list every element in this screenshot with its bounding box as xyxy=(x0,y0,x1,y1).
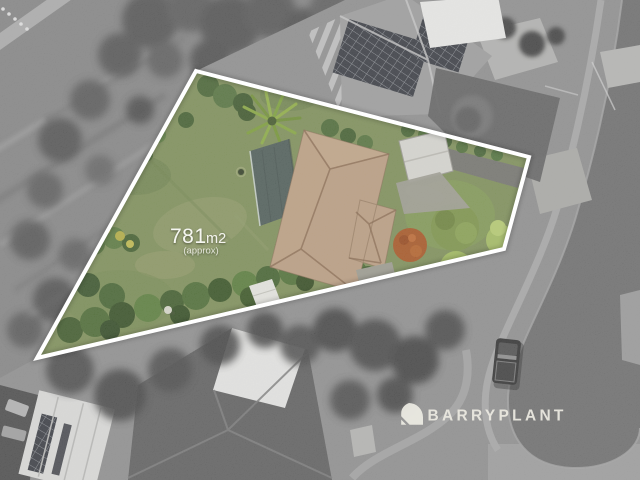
aerial-photo: 781 m2 (approx) BARRYPLANT xyxy=(0,0,640,480)
aerial-photo-canvas: 781 m2 (approx) BARRYPLANT xyxy=(0,0,640,480)
brand-name: BARRYPLANT xyxy=(428,408,567,425)
area-qualifier: (approx) xyxy=(183,246,218,257)
